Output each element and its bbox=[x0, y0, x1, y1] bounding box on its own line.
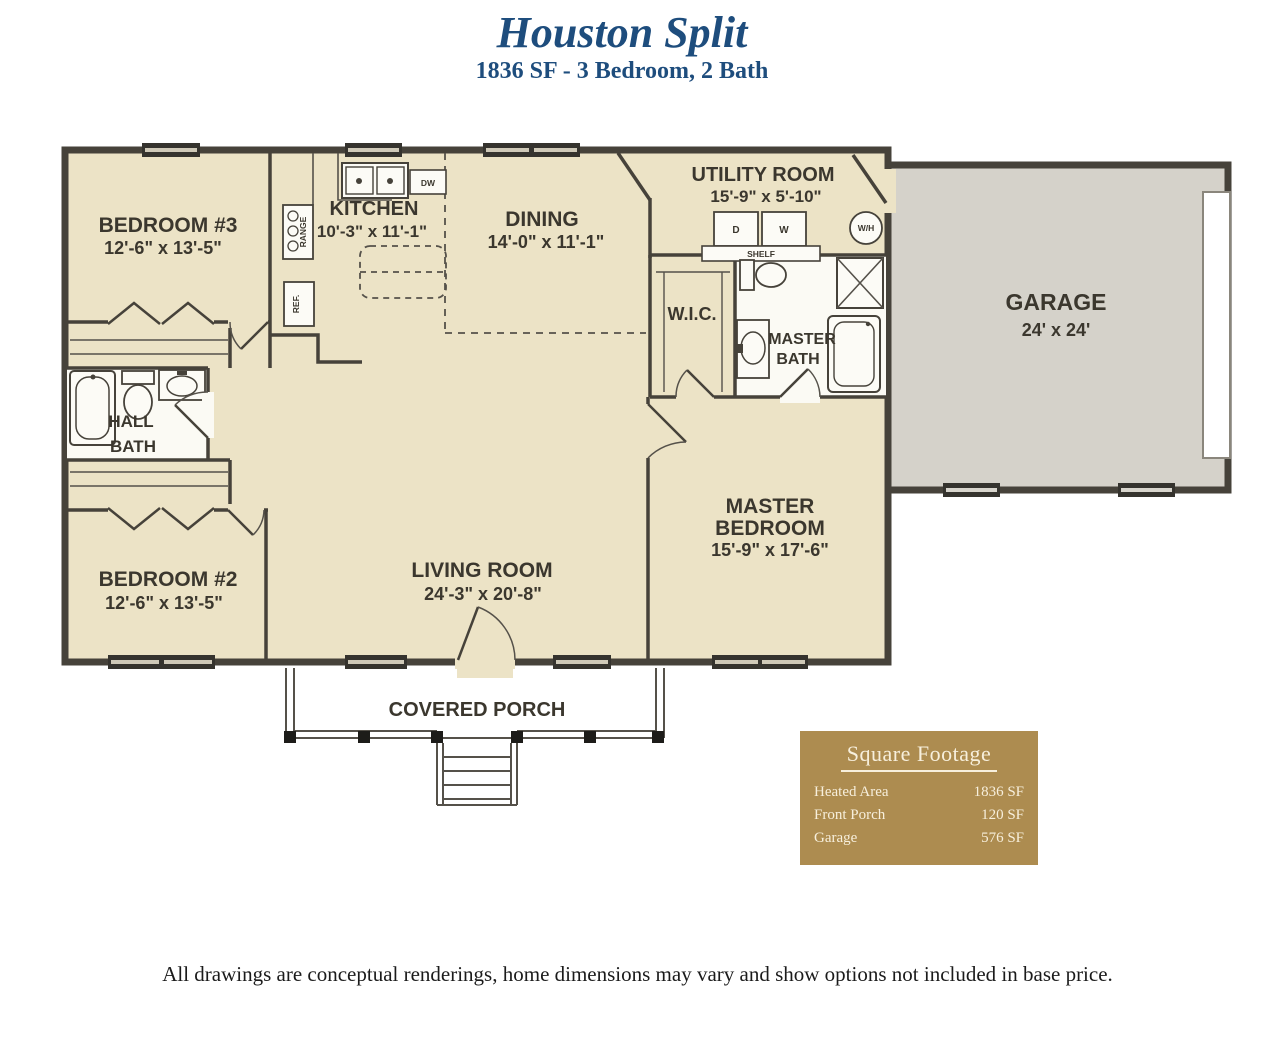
sqft-row-label: Garage bbox=[814, 827, 857, 850]
square-footage-row: Front Porch 120 SF bbox=[814, 804, 1024, 827]
porch-label: COVERED PORCH bbox=[389, 699, 566, 721]
kitchen-dims: 10'-3" x 11'-1" bbox=[317, 222, 427, 241]
floor-plan-drawing: GARAGE 24' x 24' bbox=[0, 0, 1275, 1044]
toilet-tank bbox=[740, 260, 754, 290]
dryer-label: D bbox=[732, 225, 739, 236]
hall-bath-label-2: BATH bbox=[110, 437, 156, 456]
living-dims: 24'-3" x 20'-8" bbox=[424, 584, 542, 604]
garage-label: GARAGE bbox=[1006, 289, 1107, 315]
sink-basin bbox=[167, 376, 197, 396]
living-label: LIVING ROOM bbox=[411, 559, 552, 582]
wic-label: W.I.C. bbox=[668, 304, 717, 324]
sqft-row-label: Front Porch bbox=[814, 804, 885, 827]
range-label: RANGE bbox=[298, 216, 308, 247]
master-bath-label-2: BATH bbox=[776, 351, 819, 368]
dining-label: DINING bbox=[505, 208, 579, 231]
covered-porch: COVERED PORCH bbox=[284, 668, 664, 805]
garage-entry-opening bbox=[880, 169, 896, 213]
bedroom3-label: BEDROOM #3 bbox=[99, 214, 238, 237]
garage-room: GARAGE 24' x 24' bbox=[888, 165, 1230, 497]
square-footage-row: Heated Area 1836 SF bbox=[814, 781, 1024, 804]
square-footage-rows: Heated Area 1836 SF Front Porch 120 SF G… bbox=[814, 781, 1024, 850]
master-bedroom-dims: 15'-9" x 17'-6" bbox=[711, 540, 829, 560]
square-footage-title: Square Footage bbox=[814, 741, 1024, 772]
tub-faucet bbox=[91, 375, 96, 380]
garage-dims: 24' x 24' bbox=[1022, 320, 1091, 340]
hall-bath-label-1: HALL bbox=[108, 412, 153, 431]
garage-side-recess bbox=[1203, 192, 1230, 458]
water-heater-label: W/H bbox=[858, 223, 875, 233]
porch-steps bbox=[437, 743, 517, 805]
sink-faucet bbox=[737, 344, 743, 353]
master-bath-label-1: MASTER bbox=[768, 331, 836, 348]
bedroom2-dims: 12'-6" x 13'-5" bbox=[105, 593, 223, 613]
washer-label: W bbox=[779, 225, 789, 236]
sqft-row-value: 120 SF bbox=[981, 804, 1024, 827]
bedroom3-dims: 12'-6" x 13'-5" bbox=[104, 238, 222, 258]
shelf-label: SHELF bbox=[747, 249, 775, 259]
refrigerator-label: REF. bbox=[291, 295, 301, 313]
utility-dims: 15'-9" x 5'-10" bbox=[710, 187, 821, 206]
square-footage-box: Square Footage Heated Area 1836 SF Front… bbox=[800, 731, 1038, 865]
sqft-row-value: 1836 SF bbox=[974, 781, 1024, 804]
master-bedroom-label-2: BEDROOM bbox=[715, 517, 825, 540]
master-bedroom-label-1: MASTER bbox=[726, 495, 815, 518]
sqft-row-label: Heated Area bbox=[814, 781, 889, 804]
sqft-row-value: 576 SF bbox=[981, 827, 1024, 850]
kitchen-label: KITCHEN bbox=[330, 198, 419, 220]
toilet-bowl bbox=[756, 263, 786, 287]
bedroom2-label: BEDROOM #2 bbox=[99, 568, 238, 591]
dishwasher-label: DW bbox=[421, 178, 436, 188]
disclaimer-text: All drawings are conceptual renderings, … bbox=[0, 962, 1275, 987]
square-footage-title-text: Square Footage bbox=[841, 741, 997, 772]
utility-label: UTILITY ROOM bbox=[692, 164, 835, 186]
dining-dims: 14'-0" x 11'-1" bbox=[488, 232, 605, 252]
toilet-tank bbox=[122, 371, 154, 384]
square-footage-row: Garage 576 SF bbox=[814, 827, 1024, 850]
floor-plan-page: { "header": { "title": "Houston Split", … bbox=[0, 0, 1275, 1044]
bathtub-basin bbox=[76, 377, 109, 439]
bathtub-basin bbox=[834, 322, 874, 386]
sink-faucet bbox=[177, 371, 187, 375]
sink-basin bbox=[741, 332, 765, 364]
